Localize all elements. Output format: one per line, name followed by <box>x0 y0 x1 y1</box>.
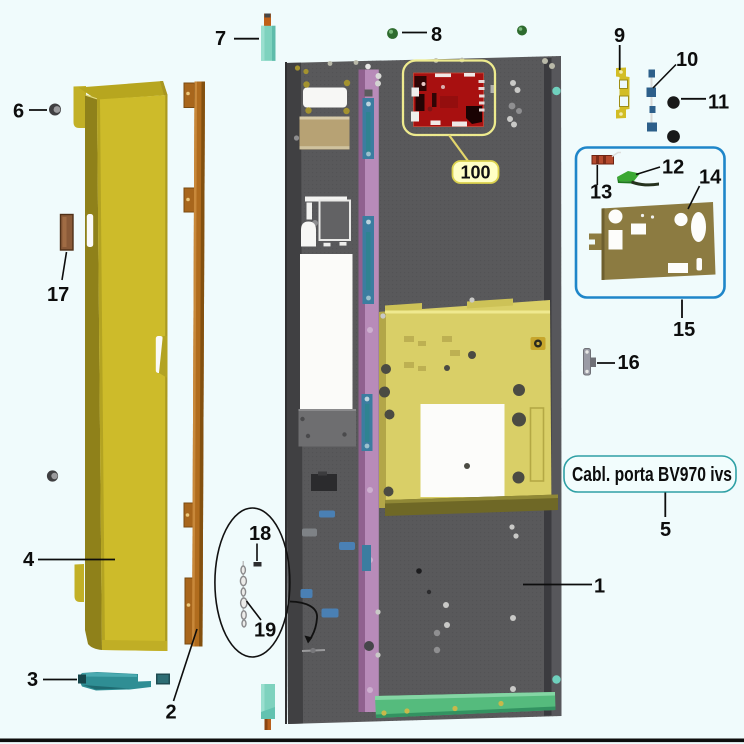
svg-text:5: 5 <box>660 519 671 541</box>
svg-text:14: 14 <box>699 167 722 189</box>
svg-text:17: 17 <box>47 284 69 306</box>
svg-text:4: 4 <box>23 549 35 571</box>
svg-text:100: 100 <box>460 163 490 183</box>
svg-text:10: 10 <box>676 49 698 71</box>
svg-text:Cabl. porta BV970 ivs: Cabl. porta BV970 ivs <box>572 463 732 486</box>
svg-text:11: 11 <box>708 92 729 114</box>
svg-text:18: 18 <box>249 523 271 545</box>
svg-text:3: 3 <box>27 669 38 691</box>
svg-text:13: 13 <box>590 182 612 204</box>
svg-text:9: 9 <box>614 25 625 47</box>
svg-text:7: 7 <box>215 28 226 50</box>
svg-text:16: 16 <box>618 352 640 374</box>
svg-text:1: 1 <box>594 576 605 598</box>
svg-text:6: 6 <box>13 101 24 123</box>
svg-text:19: 19 <box>254 620 276 642</box>
svg-text:12: 12 <box>662 157 684 179</box>
svg-text:2: 2 <box>166 702 177 724</box>
svg-text:8: 8 <box>431 24 442 46</box>
svg-text:15: 15 <box>673 319 695 341</box>
